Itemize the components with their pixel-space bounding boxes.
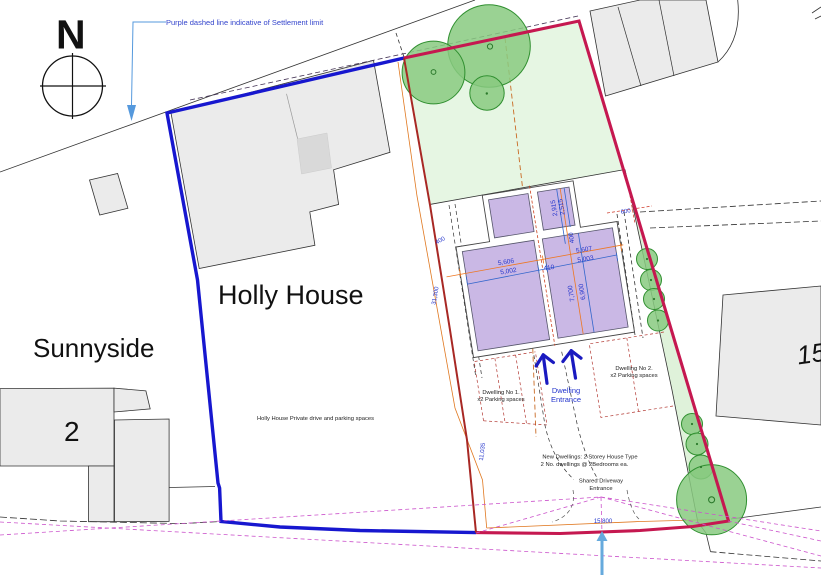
svg-text:Shared Driveway: Shared Driveway <box>579 479 623 485</box>
svg-text:Dwelling: Dwelling <box>552 386 580 395</box>
svg-text:Dwelling No 1.: Dwelling No 1. <box>482 390 520 396</box>
svg-text:New Dwellings: 2 Storey House: New Dwellings: 2 Storey House Type <box>542 455 637 461</box>
svg-text:N: N <box>56 12 86 58</box>
svg-text:2 No. dwellings @ 2Bedrooms ea: 2 No. dwellings @ 2Bedrooms ea. <box>541 462 629 468</box>
svg-text:15,800: 15,800 <box>594 519 613 525</box>
svg-text:2: 2 <box>64 416 80 447</box>
svg-text:15: 15 <box>795 337 821 371</box>
svg-text:Entrance: Entrance <box>589 486 612 492</box>
svg-text:x2 Parking spaces: x2 Parking spaces <box>477 397 524 403</box>
svg-text:Holly House: Holly House <box>218 280 364 310</box>
svg-text:Entrance: Entrance <box>551 395 581 404</box>
svg-text:Sunnyside: Sunnyside <box>33 333 154 363</box>
svg-text:Dwelling No 2.: Dwelling No 2. <box>615 366 653 372</box>
svg-text:Holly House Private drive and: Holly House Private drive and parking sp… <box>257 416 374 422</box>
svg-text:x2 Parking spaces: x2 Parking spaces <box>610 373 657 379</box>
svg-text:Purple dashed line indicative: Purple dashed line indicative of Settlem… <box>166 18 324 27</box>
